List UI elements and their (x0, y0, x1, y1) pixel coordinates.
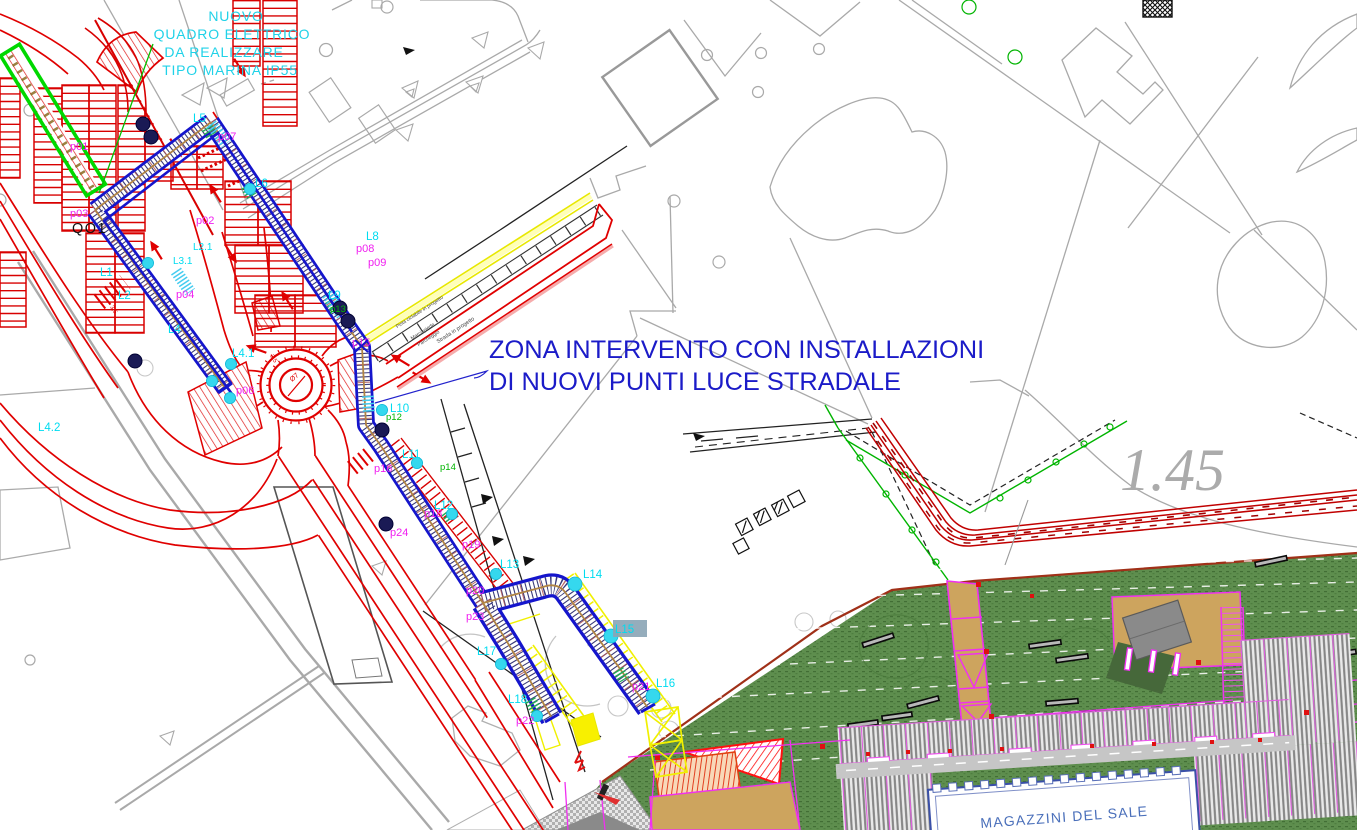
svg-text:p16: p16 (374, 463, 392, 475)
svg-text:L6: L6 (255, 178, 268, 190)
svg-text:p24: p24 (390, 527, 408, 539)
svg-text:p18: p18 (424, 508, 442, 520)
svg-text:p20: p20 (466, 585, 484, 597)
svg-text:DA REALIZZARE: DA REALIZZARE (164, 44, 283, 60)
svg-text:p01: p01 (70, 141, 88, 153)
svg-text:L3.1: L3.1 (173, 256, 193, 267)
svg-text:DI NUOVI PUNTI LUCE STRADALE: DI NUOVI PUNTI LUCE STRADALE (489, 368, 901, 396)
svg-text:L4.2: L4.2 (38, 422, 60, 434)
svg-text:L17: L17 (477, 646, 496, 658)
svg-text:L15: L15 (615, 624, 634, 636)
svg-text:p14: p14 (440, 462, 456, 473)
svg-text:1.45: 1.45 (1120, 437, 1225, 503)
svg-text:p22: p22 (516, 715, 534, 727)
svg-text:L18: L18 (508, 694, 527, 706)
svg-text:p06: p06 (236, 385, 254, 397)
svg-text:p23: p23 (466, 611, 484, 623)
svg-text:L9: L9 (328, 290, 341, 302)
svg-text:QO1: QO1 (72, 221, 107, 237)
svg-text:L5: L5 (193, 113, 206, 125)
svg-text:TIPO MARINA IP55: TIPO MARINA IP55 (162, 62, 298, 78)
svg-text:L14: L14 (583, 569, 603, 581)
svg-text:QUADRO ELETTRICO: QUADRO ELETTRICO (154, 26, 311, 42)
svg-text:ZONA INTERVENTO CON INSTALLAZI: ZONA INTERVENTO CON INSTALLAZIONI (489, 336, 984, 364)
svg-text:p21: p21 (632, 681, 650, 693)
svg-text:NUOVO: NUOVO (208, 8, 263, 24)
svg-text:L4.1: L4.1 (232, 348, 254, 360)
svg-text:p07: p07 (218, 131, 236, 143)
svg-text:p19: p19 (462, 539, 480, 551)
svg-text:L8: L8 (366, 231, 379, 243)
svg-text:p09: p09 (368, 257, 386, 269)
svg-text:L16: L16 (656, 678, 675, 690)
svg-text:p08: p08 (356, 243, 374, 255)
svg-text:p02: p02 (196, 215, 214, 227)
svg-text:L13: L13 (500, 559, 519, 571)
svg-text:L2: L2 (118, 290, 131, 302)
svg-text:p12: p12 (386, 412, 402, 423)
svg-text:L2.1: L2.1 (193, 242, 213, 253)
svg-text:p04: p04 (176, 289, 194, 301)
svg-text:p03: p03 (70, 208, 88, 220)
svg-text:L11: L11 (402, 449, 420, 461)
svg-text:L4: L4 (168, 324, 181, 336)
svg-text:L1: L1 (100, 267, 113, 279)
svg-text:p13: p13 (330, 304, 346, 315)
